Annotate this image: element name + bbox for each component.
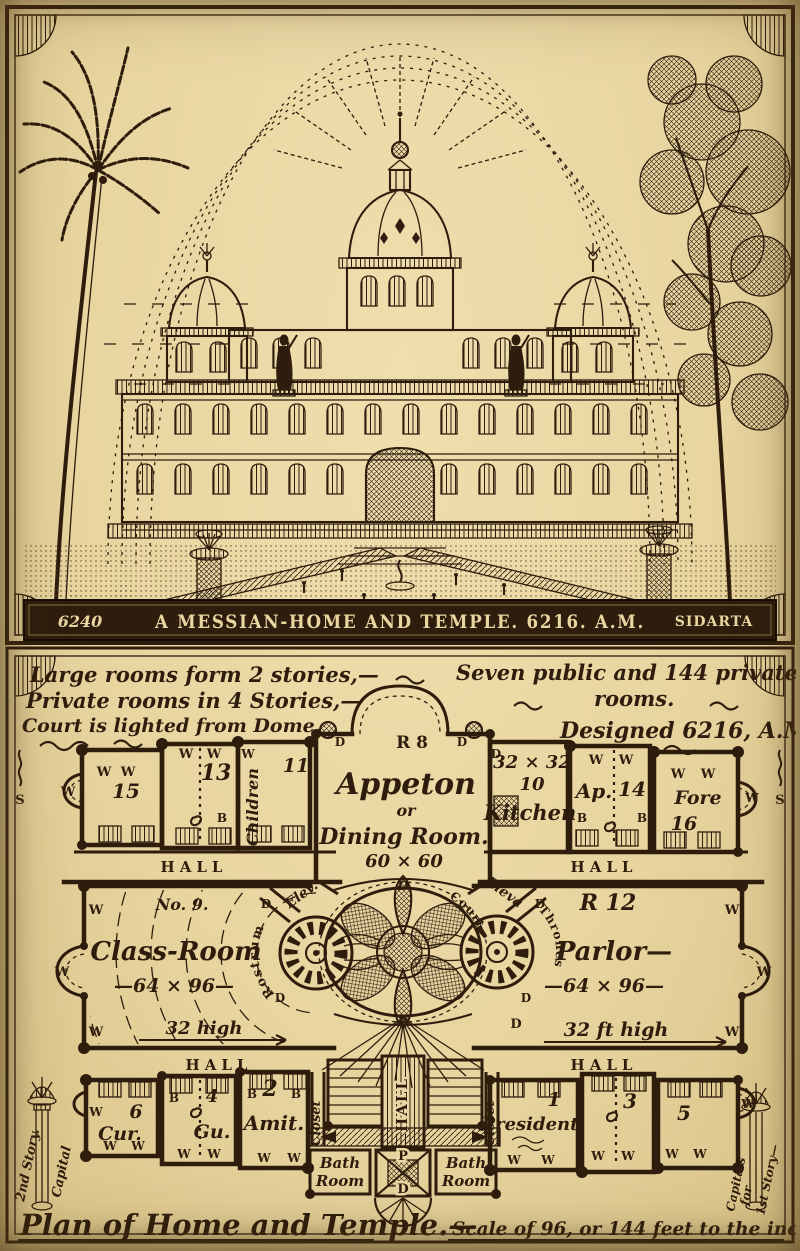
bed-label: B: [247, 1087, 257, 1101]
window-label: W: [60, 785, 76, 800]
banner-left-number: 6240: [58, 612, 103, 631]
window-label: W: [54, 965, 70, 980]
bed-label: B: [637, 811, 647, 825]
note-left-3: Court is lighted from Dome.: [22, 715, 321, 737]
window-label: W: [670, 767, 686, 782]
hall-label: HALL: [571, 1056, 638, 1074]
appeton-size: 60 × 60: [365, 851, 443, 872]
window-label: W: [618, 753, 634, 768]
margin-right-line3: 1st Story—: [753, 1143, 782, 1217]
bottom-band: W 6 Cur. W W B 4 Gu. W W B 2 B Amit. W W…: [74, 1056, 755, 1226]
window-label: W: [88, 903, 104, 918]
door-label: D: [521, 991, 531, 1005]
window-label: W: [588, 753, 604, 768]
window-label: W: [692, 1147, 707, 1161]
elevator-wheel-left: [280, 917, 352, 989]
classroom-size: —64 × 96—: [114, 975, 234, 997]
room-6-number: 6: [129, 1101, 142, 1123]
engraving-illustration: 6240 A MESSIAN-HOME AND TEMPLE. 6216. A.…: [4, 4, 796, 646]
entrance-arch: [366, 448, 434, 522]
shaft-p-label: P: [398, 1149, 408, 1164]
room-1-number: 1: [547, 1089, 560, 1111]
door-label: D: [535, 897, 545, 911]
kitchen-size: 32 × 32: [493, 752, 571, 773]
window-label: W: [664, 1147, 679, 1161]
window-label: W: [724, 903, 740, 918]
appeton-alt-name: Dining Room.: [318, 824, 488, 850]
central-dome: [339, 112, 461, 331]
room-11-number: 11: [283, 755, 309, 777]
caption-title: Plan of Home and Temple.—: [19, 1208, 477, 1242]
parlor-name: Parlor—: [555, 937, 672, 967]
bath-left-line2: Room: [315, 1172, 364, 1190]
room-14-name: Ap.: [574, 779, 612, 803]
window-label: W: [206, 1147, 221, 1161]
door-label: D: [510, 1017, 521, 1032]
room-5-number: 5: [677, 1101, 691, 1125]
door-label: D: [275, 991, 285, 1005]
classroom-height: 32 high: [166, 1018, 243, 1039]
parlor-height: 32 ft high: [564, 1019, 669, 1041]
margin-capital-right: Capitals for 1st Story—: [723, 1083, 782, 1217]
window-label: W: [590, 1149, 605, 1163]
note-left-2: Private rooms in 4 Stories,—: [25, 688, 361, 713]
room-2-number: 2: [261, 1076, 277, 1102]
window-label: W: [286, 1151, 301, 1165]
room-13-number: 13: [201, 760, 232, 786]
side-dome-left: [161, 243, 253, 382]
rostrum-label: Rostrum: [247, 922, 278, 1001]
room-3-number: 3: [623, 1089, 637, 1113]
parlor-size: —64 × 96—: [544, 975, 664, 997]
stair-core: Closet HALL Closet: [308, 1056, 500, 1148]
temple-facade: [108, 112, 692, 539]
bed-label: B: [291, 1087, 301, 1101]
parlor-id: R 12: [579, 890, 637, 916]
door-label: D: [335, 735, 345, 749]
room-4-number: 4: [206, 1086, 219, 1107]
room-14-number: 14: [618, 777, 646, 801]
book-page: 6240 A MESSIAN-HOME AND TEMPLE. 6216. A.…: [0, 0, 800, 1251]
floor-plan: Large rooms form 2 stories,— Private roo…: [4, 646, 796, 1247]
note-right-1: Seven public and 144 private: [456, 660, 796, 685]
appeton-or: or: [396, 801, 417, 820]
plan-caption: Plan of Home and Temple.— Scale of 96, o…: [18, 1208, 796, 1242]
note-right-2: rooms.: [594, 686, 674, 711]
window-label: W: [744, 791, 759, 805]
bath-right-line2: Room: [441, 1172, 490, 1190]
window-label: W: [724, 1025, 740, 1040]
window-label: W: [88, 1025, 104, 1040]
window-label: W: [178, 747, 194, 762]
banner-right-name: SIDARTA: [675, 614, 754, 630]
bed-label: B: [577, 811, 587, 825]
palm-tree: [20, 48, 188, 602]
room-16-name: Fore: [673, 787, 721, 809]
kitchen-number: 10: [519, 774, 545, 795]
door-label: D: [261, 897, 271, 911]
banner-title: A MESSIAN-HOME AND TEMPLE. 6216. A.M.: [154, 611, 645, 633]
window-label: W: [130, 1139, 145, 1153]
bath-right-line1: Bath: [445, 1154, 486, 1172]
stairs-mark-right: S: [775, 793, 784, 808]
note-right-3: Designed 6216, A.M.—: [559, 718, 796, 744]
side-dome-right: [547, 243, 639, 382]
staircase-left: [328, 1060, 382, 1126]
room-1-name: President: [481, 1114, 580, 1135]
hall-label: HALL: [571, 858, 638, 876]
room-15-number: 15: [112, 779, 140, 803]
window-label: W: [240, 747, 255, 761]
title-banner: 6240 A MESSIAN-HOME AND TEMPLE. 6216. A.…: [24, 600, 776, 640]
door-label: D: [457, 735, 467, 749]
appeton-id: R 8: [396, 733, 428, 753]
bed-label: B: [169, 1091, 179, 1105]
window-label: W: [620, 1149, 635, 1163]
window-label: W: [102, 1139, 117, 1153]
stairs-mark-left: S: [15, 793, 24, 808]
window-label: W: [120, 765, 136, 780]
hall-label: HALL: [161, 858, 228, 876]
margin-left-line2: Capital: [49, 1145, 75, 1199]
elevator-label-right: Eleva: [482, 873, 526, 911]
bed-label: B: [217, 811, 227, 825]
caption-scale: Scale of 96, or 144 feet to the inch: [452, 1219, 796, 1240]
cross-corridor: [308, 1128, 500, 1146]
children-room-label: Children: [243, 768, 262, 846]
classroom-name: Class-Room: [90, 937, 261, 967]
room-appeton: R 8 Appeton or Dining Room. 60 × 60 D D …: [316, 686, 490, 894]
shaft-d-label: D: [397, 1182, 408, 1197]
hall-vertical-label: HALL: [393, 1077, 411, 1132]
margin-left-line1: 2nd Story.: [13, 1128, 43, 1204]
appeton-name: Appeton: [333, 767, 476, 802]
elevator-wheel-right: [461, 916, 533, 988]
staircase-right: [428, 1060, 482, 1126]
kitchen-name: Kitchen: [483, 800, 577, 825]
window-label: W: [756, 965, 772, 980]
window-label: W: [540, 1153, 555, 1167]
window-label: W: [88, 1105, 103, 1119]
note-left-1: Large rooms form 2 stories,—: [29, 662, 379, 687]
window-label: W: [176, 1147, 191, 1161]
room-2-name: Amit.: [242, 1111, 304, 1135]
window-label: W: [506, 1153, 521, 1167]
room-4-name: Gu.: [194, 1121, 231, 1143]
window-label: W: [700, 767, 716, 782]
window-label: W: [256, 1151, 271, 1165]
classroom-no: No. 9.: [155, 895, 209, 914]
door-label: D: [491, 747, 501, 761]
bath-left-line1: Bath: [319, 1154, 360, 1172]
room-16-number: 16: [671, 813, 697, 835]
svg-text:Rostrum: Rostrum: [247, 922, 278, 1001]
radiator-grills-top-left: [99, 826, 304, 844]
margin-capital-left: 2nd Story. Capital: [13, 1077, 75, 1210]
window-label: W: [96, 765, 112, 780]
